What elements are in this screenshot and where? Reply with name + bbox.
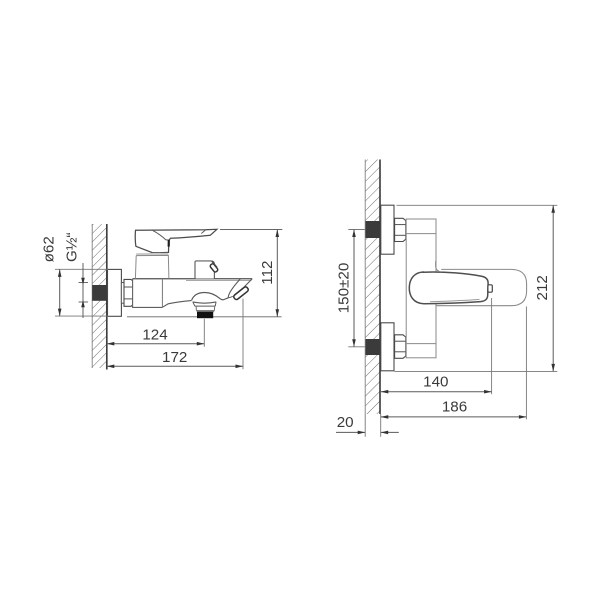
svg-text:172: 172 xyxy=(162,349,187,366)
svg-text:112: 112 xyxy=(259,260,276,284)
svg-text:20: 20 xyxy=(337,414,354,431)
svg-text:G½“: G½“ xyxy=(64,232,81,262)
svg-text:124: 124 xyxy=(142,326,167,343)
svg-text:212: 212 xyxy=(534,275,551,300)
svg-text:150±20: 150±20 xyxy=(336,263,353,314)
svg-text:186: 186 xyxy=(442,399,467,416)
svg-text:ø62: ø62 xyxy=(41,236,58,262)
svg-text:140: 140 xyxy=(423,374,448,391)
